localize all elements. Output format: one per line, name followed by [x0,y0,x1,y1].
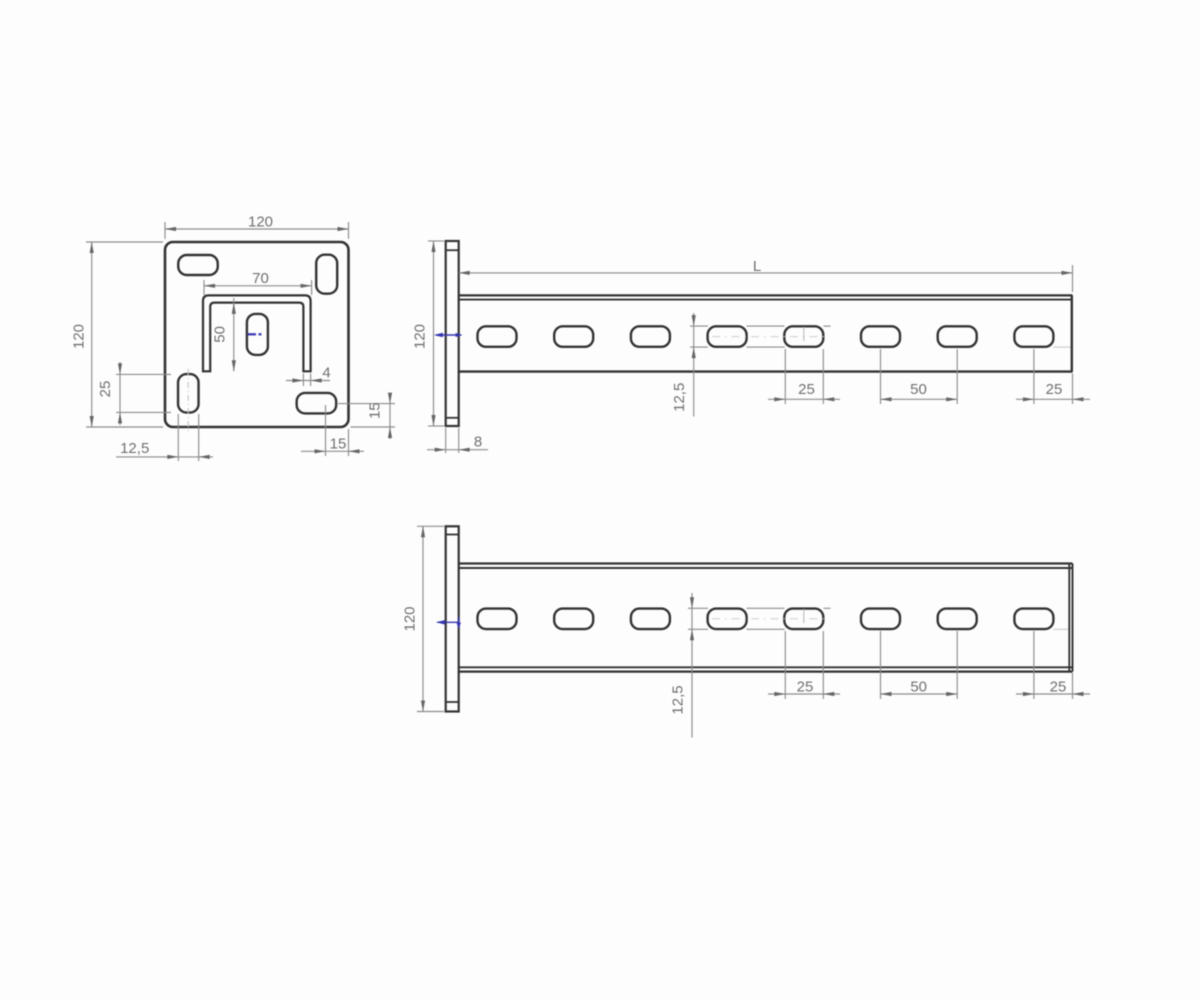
svg-text:50: 50 [211,326,228,343]
svg-text:15: 15 [330,436,347,453]
svg-text:50: 50 [910,679,927,696]
svg-text:25: 25 [97,381,114,398]
svg-text:12,5: 12,5 [120,440,149,457]
svg-text:120: 120 [71,324,88,349]
svg-text:25: 25 [798,381,815,398]
svg-text:8: 8 [474,433,482,450]
svg-text:15: 15 [367,402,384,419]
svg-text:L: L [753,258,761,275]
svg-text:50: 50 [910,381,927,398]
svg-text:120: 120 [402,606,419,631]
svg-text:120: 120 [412,324,429,349]
svg-text:120: 120 [248,213,273,230]
svg-text:70: 70 [252,270,269,287]
svg-text:12,5: 12,5 [670,685,687,714]
svg-text:25: 25 [1050,679,1067,696]
svg-text:25: 25 [797,679,814,696]
svg-text:12,5: 12,5 [671,383,688,412]
svg-text:25: 25 [1046,381,1063,398]
svg-text:4: 4 [322,364,330,381]
